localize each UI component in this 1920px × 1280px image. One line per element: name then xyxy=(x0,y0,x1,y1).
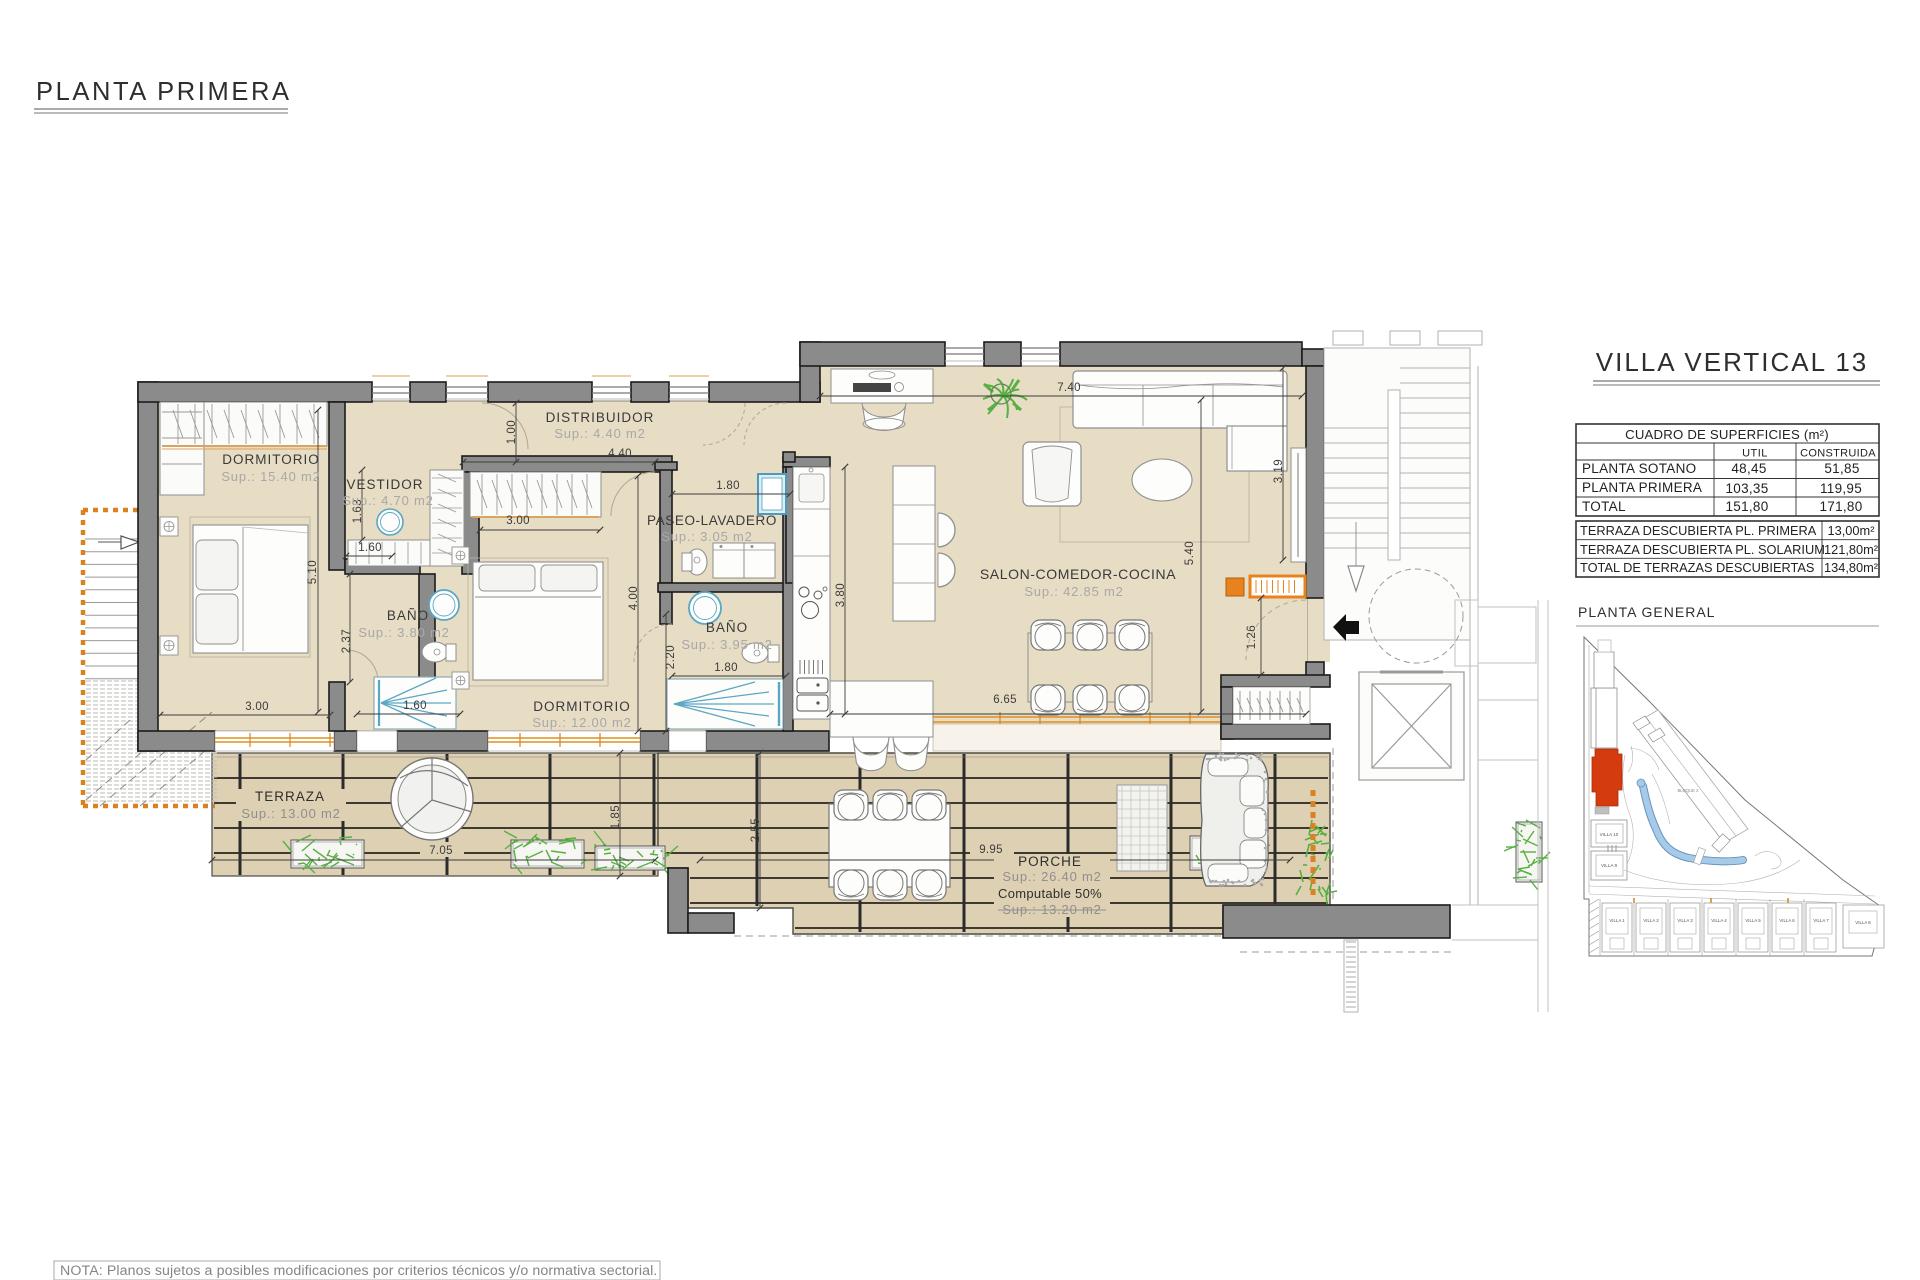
svg-text:VILLA 6: VILLA 6 xyxy=(1779,918,1795,923)
svg-text:DORMITORIO: DORMITORIO xyxy=(222,452,320,467)
svg-text:UTIL: UTIL xyxy=(1742,448,1768,460)
svg-text:PLANTA PRIMERA: PLANTA PRIMERA xyxy=(36,78,292,106)
svg-text:Sup.: 3.80 m2: Sup.: 3.80 m2 xyxy=(358,625,449,640)
svg-text:Sup.: 12.00 m2: Sup.: 12.00 m2 xyxy=(532,715,631,730)
svg-text:5.10: 5.10 xyxy=(307,560,319,584)
svg-text:2.55: 2.55 xyxy=(750,818,762,842)
svg-text:121,80m²: 121,80m² xyxy=(1824,542,1879,557)
svg-text:VILLA 4: VILLA 4 xyxy=(1711,918,1727,923)
svg-text:Sup.: 15.40 m2: Sup.: 15.40 m2 xyxy=(221,469,320,484)
svg-text:TOTAL: TOTAL xyxy=(1582,499,1626,514)
svg-text:TERRAZA DESCUBIERTA PL. SOLARI: TERRAZA DESCUBIERTA PL. SOLARIUM xyxy=(1580,542,1825,557)
svg-text:PASEO-LAVADERO: PASEO-LAVADERO xyxy=(647,513,777,528)
svg-text:7.40: 7.40 xyxy=(1057,382,1081,394)
svg-text:1.26: 1.26 xyxy=(1246,625,1258,649)
svg-text:3.19: 3.19 xyxy=(1273,459,1285,483)
svg-text:Sup.: 3.05 m2: Sup.: 3.05 m2 xyxy=(661,529,752,544)
svg-text:BAÑO: BAÑO xyxy=(706,620,748,635)
svg-text:SALON-COMEDOR-COCINA: SALON-COMEDOR-COCINA xyxy=(980,566,1176,582)
svg-text:13,00m²: 13,00m² xyxy=(1828,523,1876,538)
svg-text:VESTIDOR: VESTIDOR xyxy=(346,477,423,492)
svg-text:VILLA 10: VILLA 10 xyxy=(1600,832,1619,837)
svg-text:5.40: 5.40 xyxy=(1184,541,1196,565)
svg-text:TOTAL DE TERRAZAS DESCUBIERTAS: TOTAL DE TERRAZAS DESCUBIERTAS xyxy=(1580,560,1814,575)
svg-text:4.40: 4.40 xyxy=(608,448,632,460)
svg-text:119,95: 119,95 xyxy=(1820,481,1862,496)
svg-text:CONSTRUIDA: CONSTRUIDA xyxy=(1800,448,1876,460)
svg-text:151,80: 151,80 xyxy=(1725,499,1768,514)
svg-text:134,80m²: 134,80m² xyxy=(1824,560,1879,575)
svg-text:Sup.: 13.00 m2: Sup.: 13.00 m2 xyxy=(241,806,340,821)
svg-text:VILLA 8: VILLA 8 xyxy=(1855,920,1871,925)
svg-text:Sup.: 4.70 m2: Sup.: 4.70 m2 xyxy=(342,493,433,508)
svg-text:103,35: 103,35 xyxy=(1725,481,1768,496)
svg-text:3.00: 3.00 xyxy=(245,701,269,713)
svg-text:BLOQUE 2: BLOQUE 2 xyxy=(1678,788,1700,793)
svg-text:6.65: 6.65 xyxy=(993,694,1017,706)
svg-text:PORCHE: PORCHE xyxy=(1018,854,1082,869)
svg-text:PLANTA SOTANO: PLANTA SOTANO xyxy=(1582,461,1696,476)
svg-text:VILLA 9: VILLA 9 xyxy=(1601,863,1618,868)
svg-text:PLANTA PRIMERA: PLANTA PRIMERA xyxy=(1582,480,1702,495)
svg-text:Sup.: 42.85 m2: Sup.: 42.85 m2 xyxy=(1024,584,1123,599)
svg-text:1.80: 1.80 xyxy=(716,480,740,492)
svg-text:Sup.: 4.40 m2: Sup.: 4.40 m2 xyxy=(554,426,645,441)
svg-text:7.05: 7.05 xyxy=(429,845,453,857)
svg-text:2.37: 2.37 xyxy=(341,629,353,653)
svg-text:TERRAZA: TERRAZA xyxy=(255,789,325,804)
svg-text:TERRAZA DESCUBIERTA PL. PRIMER: TERRAZA DESCUBIERTA PL. PRIMERA xyxy=(1580,523,1817,538)
svg-text:48,45: 48,45 xyxy=(1731,461,1766,476)
svg-text:DISTRIBUIDOR: DISTRIBUIDOR xyxy=(546,410,655,425)
svg-text:171,80: 171,80 xyxy=(1819,499,1862,514)
svg-text:NOTA: Planos sujetos a posible: NOTA: Planos sujetos a posibles modifica… xyxy=(60,1263,657,1279)
svg-text:Sup.: 3.95 m2: Sup.: 3.95 m2 xyxy=(681,637,772,652)
svg-text:4.00: 4.00 xyxy=(628,586,640,610)
svg-text:VILLA VERTICAL 13: VILLA VERTICAL 13 xyxy=(1596,347,1868,377)
svg-text:1.60: 1.60 xyxy=(403,700,427,712)
svg-text:VILLA 5: VILLA 5 xyxy=(1745,918,1761,923)
svg-text:1.80: 1.80 xyxy=(714,662,738,674)
svg-text:PLANTA GENERAL: PLANTA GENERAL xyxy=(1578,604,1715,620)
svg-text:51,85: 51,85 xyxy=(1824,461,1859,476)
svg-text:3.00: 3.00 xyxy=(506,515,530,527)
svg-text:Sup.: 26.40 m2: Sup.: 26.40 m2 xyxy=(1002,869,1101,884)
svg-text:2.20: 2.20 xyxy=(665,645,677,669)
svg-text:VILLA 7: VILLA 7 xyxy=(1813,918,1829,923)
svg-text:VILLA 1: VILLA 1 xyxy=(1609,918,1625,923)
svg-text:DORMITORIO: DORMITORIO xyxy=(533,699,631,714)
svg-text:1.60: 1.60 xyxy=(358,542,382,554)
svg-text:Computable 50%: Computable 50% xyxy=(998,886,1102,901)
svg-text:CUADRO DE SUPERFICIES (m²): CUADRO DE SUPERFICIES (m²) xyxy=(1625,427,1829,442)
svg-text:BAÑO: BAÑO xyxy=(387,608,429,623)
svg-text:1.85: 1.85 xyxy=(610,805,622,829)
svg-text:VILLA 2: VILLA 2 xyxy=(1643,918,1659,923)
svg-text:VILLA 3: VILLA 3 xyxy=(1677,918,1693,923)
svg-text:3.80: 3.80 xyxy=(835,583,847,607)
svg-text:1.00: 1.00 xyxy=(506,420,518,444)
